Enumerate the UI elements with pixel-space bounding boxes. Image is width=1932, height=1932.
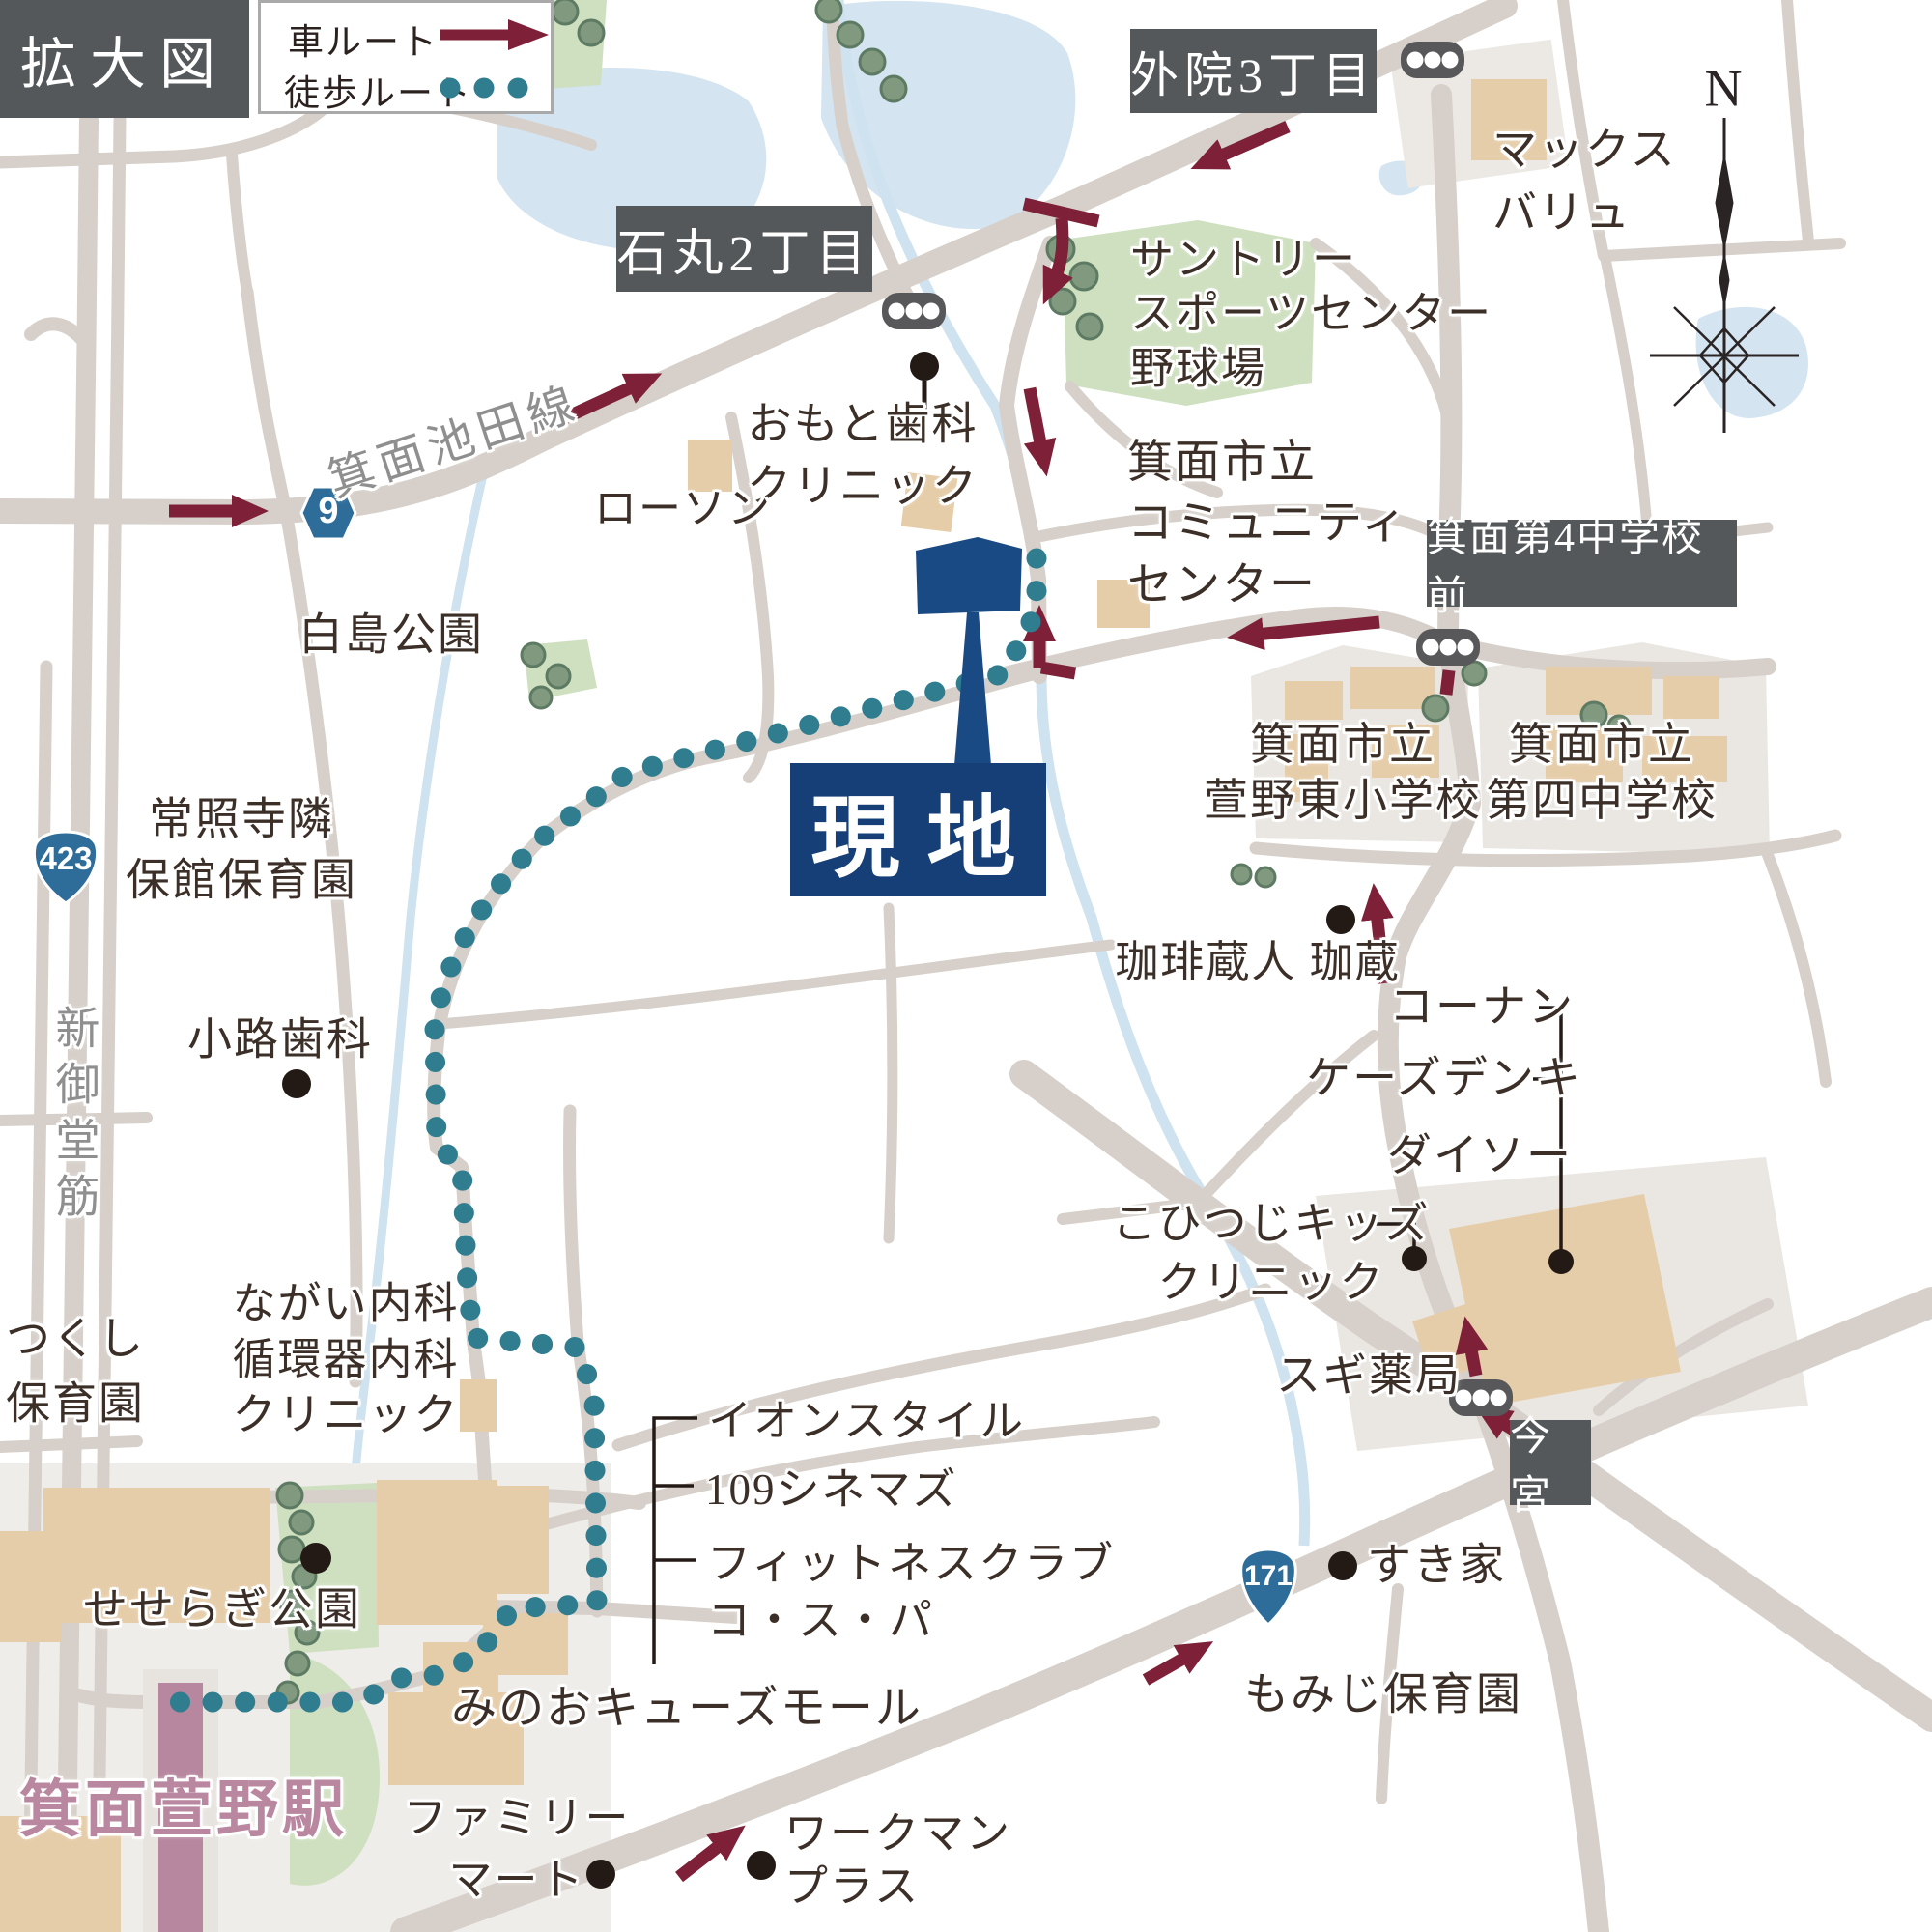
- car-route-icon: [440, 19, 549, 50]
- label-konan: コーナン: [1389, 980, 1575, 1037]
- traffic-light-gein: [1401, 42, 1464, 78]
- label-family-mart: ファミリー マート: [403, 1788, 630, 1912]
- label-nagai-clinic: ながい内科 循環器内科 クリニック: [232, 1277, 459, 1444]
- access-map: 拡大図 車ルート 徒歩ルート 石丸2丁目 外院3丁目 箕面第4中学校前 今宮 現…: [0, 0, 1932, 1932]
- legend: 車ルート 徒歩ルート: [258, 0, 554, 114]
- label-workman-plus: ワークマン プラス: [784, 1807, 1011, 1914]
- compass-north-label: N: [1705, 55, 1745, 122]
- walk-route-icon: [440, 78, 528, 99]
- label-ks-denki: ケーズデンキ: [1306, 1051, 1582, 1108]
- label-fitness-cospa: フィットネスクラブ コ・ス・パ: [707, 1536, 1115, 1649]
- label-omoto-dental: おもと歯科 クリニック: [747, 394, 979, 519]
- sign-minoh4-mae: 箕面第4中学校前: [1427, 520, 1737, 607]
- label-dai4-junior-high: 箕面市立 第四中学校: [1486, 717, 1718, 829]
- label-max-valu: マックス バリュ: [1492, 119, 1677, 245]
- label-lawson: ローソン: [594, 482, 772, 536]
- traffic-light-minoh4: [1416, 629, 1480, 666]
- label-hakushima-park: 白島公園: [298, 608, 484, 665]
- label-shoji-dental: 小路歯科: [187, 1012, 373, 1069]
- label-aeon-style: イオンスタイル: [708, 1394, 1025, 1450]
- label-qs-mall: みのおキューズモール: [451, 1680, 923, 1738]
- route-171-number: 171: [1237, 1560, 1299, 1593]
- label-sukiya: すき家: [1367, 1538, 1506, 1595]
- traffic-light-ishimaru: [882, 293, 946, 329]
- label-minoh-kayano-station: 箕面萱野駅: [19, 1771, 348, 1850]
- label-daiso: ダイソー: [1387, 1128, 1573, 1185]
- label-momiji-nursery: もみじ保育園: [1244, 1667, 1522, 1724]
- sign-gein-3chome: 外院3丁目: [1130, 29, 1377, 113]
- label-sugi-pharmacy: スギ薬局: [1276, 1349, 1462, 1406]
- enlarged-map-title: 拡大図: [0, 0, 249, 118]
- legend-symbols: [433, 3, 558, 111]
- route-423-number: 423: [29, 840, 102, 877]
- label-tsukushi-nursery: つくし 保育園: [6, 1307, 145, 1435]
- road-shin-midosuji: 新御堂筋: [45, 1005, 102, 1229]
- route-171-shield: 171: [1237, 1547, 1299, 1628]
- label-community-center: 箕面市立 コミュニティ センター: [1127, 433, 1408, 616]
- label-coffee-kurando: 珈琲蔵人 珈蔵: [1115, 935, 1400, 991]
- label-109-cinemas: 109シネマズ: [705, 1463, 958, 1519]
- label-seseragi-park: せせらぎ公園: [83, 1582, 361, 1639]
- label-suntory-ballpark: サントリー スポーツセンター 野球場: [1130, 233, 1492, 396]
- label-kohitsuji-clinic: こひつじキッズ クリニック: [1112, 1194, 1430, 1312]
- route-423-shield: 423: [29, 829, 102, 906]
- label-joshoji-nursery: 常照寺隣 保館保育園: [126, 789, 357, 912]
- site-label: 現地: [790, 763, 1046, 896]
- sign-ishimaru-2chome: 石丸2丁目: [616, 206, 872, 292]
- sign-imamiya: 今宮: [1510, 1420, 1591, 1505]
- label-kayano-east-elem: 箕面市立 萱野東小学校: [1204, 717, 1482, 829]
- legend-car-label: 車ルート: [288, 13, 439, 65]
